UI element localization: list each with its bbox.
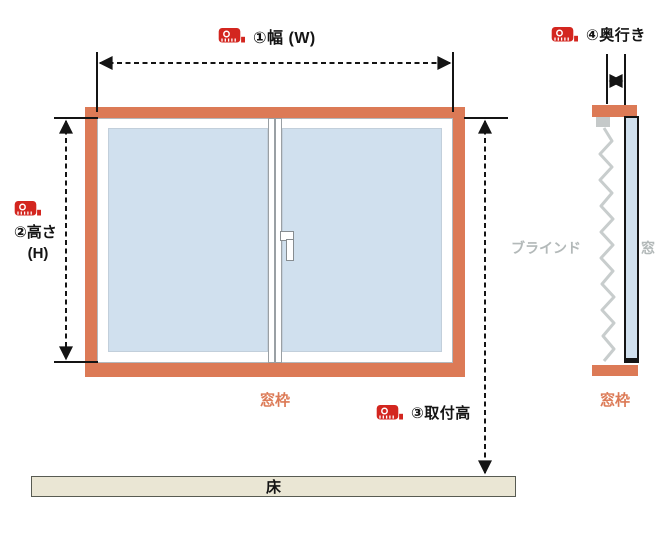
height-suffix: (H)	[28, 245, 49, 262]
width-label: ①幅 (W)	[253, 24, 316, 48]
side-frame-bottom	[592, 365, 638, 376]
height-label-group: ②高さ (H)	[14, 200, 62, 262]
glass-pane-left	[108, 128, 268, 352]
glass-pane-right	[282, 128, 442, 352]
sash-stile-left	[268, 118, 275, 363]
width-label-group: ①幅 (W)	[218, 24, 316, 48]
depth-label-group: ④奥行き	[551, 24, 646, 45]
floor-bar: 床	[31, 476, 516, 497]
tape-measure-icon	[14, 200, 41, 218]
tape-measure-icon	[376, 404, 403, 422]
blind-slats	[600, 128, 614, 361]
window-label-side: 窓	[641, 238, 655, 258]
mount-height-label-group: ③取付高	[376, 402, 471, 423]
height-label: ②高さ	[14, 221, 57, 242]
depth-label: ④奥行き	[586, 24, 646, 45]
mount-height-label: ③取付高	[411, 402, 471, 423]
window-handle-lever	[286, 239, 294, 261]
side-frame-top	[592, 105, 637, 117]
tape-measure-icon	[551, 26, 578, 44]
blind-headbox	[596, 117, 610, 127]
side-window-glass	[625, 117, 638, 362]
window-frame-label-side: 窓枠	[580, 389, 650, 410]
tape-measure-icon	[218, 27, 245, 45]
window-frame-label-front: 窓枠	[240, 389, 310, 410]
floor-label: 床	[266, 476, 281, 497]
measurement-diagram: 床	[0, 0, 666, 539]
blind-label: ブラインド	[511, 238, 581, 258]
